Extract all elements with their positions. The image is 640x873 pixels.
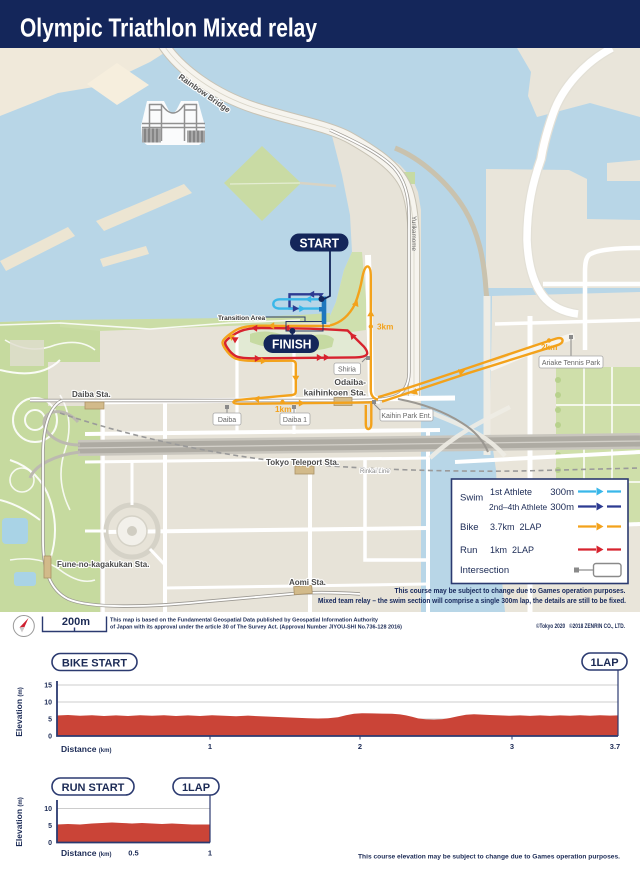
svg-text:Bike: Bike [460, 522, 478, 533]
svg-text:3: 3 [510, 742, 514, 751]
svg-text:START: START [300, 237, 340, 251]
svg-text:Swim: Swim [460, 493, 483, 504]
svg-text:1LAP: 1LAP [590, 657, 618, 669]
svg-text:2nd–4th Athlete: 2nd–4th Athlete [489, 502, 548, 512]
svg-text:Intersection: Intersection [460, 565, 509, 576]
svg-text:kaihinkoen Sta.: kaihinkoen Sta. [304, 388, 366, 398]
svg-text:Daiba: Daiba [218, 417, 236, 424]
svg-text:0: 0 [48, 734, 52, 741]
svg-text:Odaiba-: Odaiba- [334, 377, 366, 387]
svg-text:1LAP: 1LAP [182, 782, 210, 794]
svg-text:300m: 300m [550, 502, 574, 513]
svg-text:©Tokyo 2020 ©2018 ZENRIN CO.: ©Tokyo 2020 ©2018 ZENRIN CO., LTD. [536, 623, 625, 630]
svg-text:Mixed team relay – the swim se: Mixed team relay – the swim section will… [318, 596, 626, 605]
svg-text:This course may be subject to: This course may be subject to change due… [395, 586, 626, 595]
svg-text:This course elevation may be s: This course elevation may be subject to … [358, 854, 620, 861]
svg-text:2: 2 [358, 742, 362, 751]
svg-text:of Japan with its approval und: of Japan with its approval under the art… [110, 625, 402, 631]
svg-text:This map is based on the Funda: This map is based on the Fundamental Geo… [110, 618, 379, 624]
svg-text:1km 2LAP: 1km 2LAP [490, 545, 534, 555]
svg-text:Daiba Sta.: Daiba Sta. [72, 390, 111, 399]
svg-text:300m: 300m [550, 487, 574, 498]
svg-text:5: 5 [48, 717, 52, 724]
svg-text:Rinkai Line: Rinkai Line [360, 469, 390, 475]
svg-text:RUN START: RUN START [62, 782, 125, 794]
svg-text:10: 10 [44, 806, 52, 813]
svg-text:1st Athlete: 1st Athlete [490, 487, 532, 497]
svg-text:5: 5 [48, 823, 52, 830]
svg-text:BIKE START: BIKE START [62, 658, 127, 670]
svg-text:Tokyo Teleport Sta.: Tokyo Teleport Sta. [266, 458, 339, 467]
svg-text:Daiba 1: Daiba 1 [283, 417, 307, 424]
svg-text:Transition Area: Transition Area [218, 315, 265, 322]
svg-text:10: 10 [44, 700, 52, 707]
svg-text:3.7: 3.7 [610, 742, 620, 751]
svg-text:Aomi Sta.: Aomi Sta. [289, 578, 326, 587]
svg-text:FINISH: FINISH [272, 338, 312, 352]
svg-text:2km: 2km [541, 343, 557, 352]
svg-text:Olympic Triathlon Mixed relay: Olympic Triathlon Mixed relay [20, 13, 317, 43]
svg-text:3km: 3km [377, 323, 393, 332]
svg-text:200m: 200m [62, 616, 90, 628]
svg-text:0.5: 0.5 [128, 849, 138, 858]
svg-text:Kaihin Park Ent.: Kaihin Park Ent. [381, 413, 431, 420]
svg-text:Run: Run [460, 545, 477, 556]
svg-text:3.7km 2LAP: 3.7km 2LAP [490, 522, 542, 532]
svg-text:15: 15 [44, 683, 52, 690]
svg-text:Shiria: Shiria [338, 367, 356, 374]
svg-text:Fune-no-kagakukan Sta.: Fune-no-kagakukan Sta. [57, 560, 149, 569]
svg-text:0: 0 [48, 840, 52, 847]
svg-text:Yurikamome: Yurikamome [410, 216, 417, 251]
svg-text:1: 1 [208, 742, 212, 751]
svg-text:1: 1 [208, 849, 212, 858]
svg-text:Ariake Tennis Park: Ariake Tennis Park [542, 360, 601, 367]
